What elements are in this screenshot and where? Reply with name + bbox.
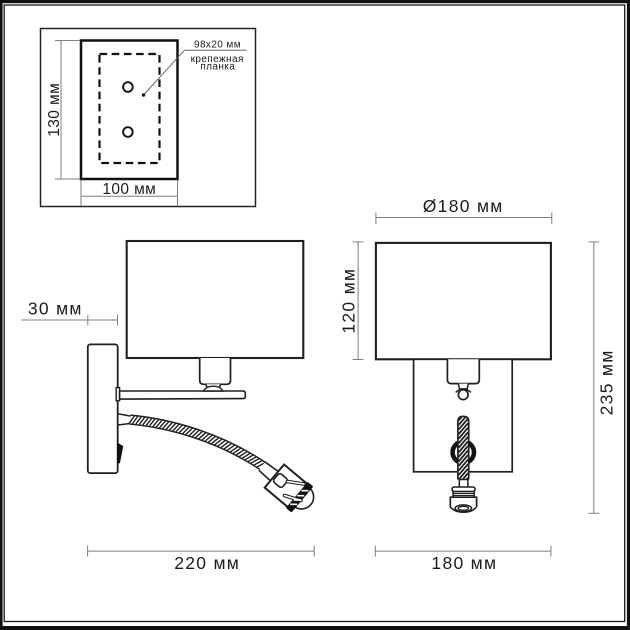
svg-text:98x20 мм: 98x20 мм <box>194 40 241 51</box>
svg-text:Ø180 мм: Ø180 мм <box>423 196 504 216</box>
svg-text:220 мм: 220 мм <box>174 553 240 573</box>
svg-text:130 мм: 130 мм <box>46 83 63 137</box>
svg-text:100 мм: 100 мм <box>102 181 156 198</box>
svg-text:планка: планка <box>200 61 235 72</box>
svg-text:180 мм: 180 мм <box>431 553 497 573</box>
svg-text:30 мм: 30 мм <box>28 299 83 319</box>
svg-text:120 мм: 120 мм <box>339 268 359 334</box>
svg-text:235 мм: 235 мм <box>597 349 617 415</box>
